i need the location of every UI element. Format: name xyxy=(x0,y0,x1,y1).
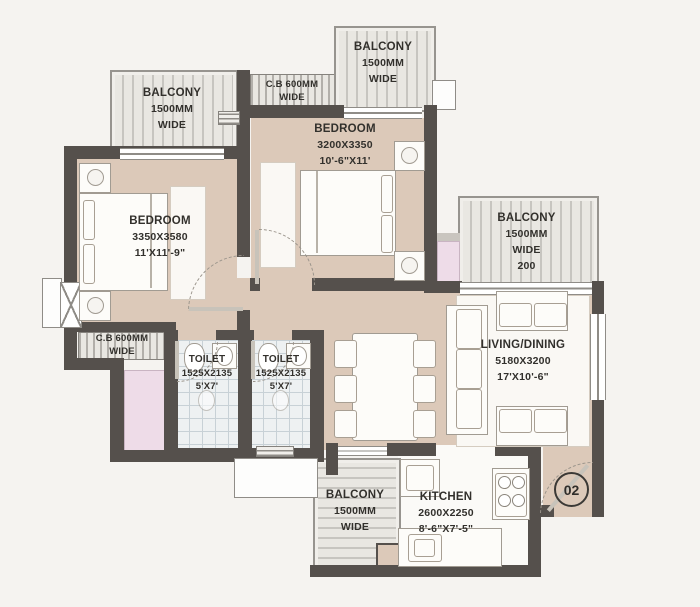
wall xyxy=(237,159,250,257)
wall xyxy=(237,310,250,334)
door-leaf xyxy=(189,307,243,311)
label-bedroom-left: BEDROOM 3350X3580 11'X11'-9" xyxy=(88,210,232,264)
pillow xyxy=(381,175,393,213)
sofa-cushion xyxy=(534,409,567,433)
label-kitchen: KITCHEN 2600X2250 8'-6"X7'-5" xyxy=(398,486,494,540)
label-cupboard-top: C.B 600MM WIDE xyxy=(252,78,332,106)
floor-plan: BALCONY 1500MM WIDE C.B 600MM WIDE BALCO… xyxy=(0,0,700,607)
lamp xyxy=(87,169,104,186)
burner xyxy=(512,476,525,489)
sink-bowl xyxy=(414,539,435,557)
chair xyxy=(413,375,436,403)
vent xyxy=(256,446,294,457)
label-balcony-top-left: BALCONY 1500MM WIDE xyxy=(112,80,232,138)
label-toilet-right: TOILET 1525X2135 5'X7' xyxy=(250,350,312,396)
ac-ledge xyxy=(42,278,62,328)
label-balcony-bottom: BALCONY 1500MM WIDE xyxy=(315,482,395,540)
burner xyxy=(512,494,525,507)
door-opening xyxy=(178,330,216,340)
pillow xyxy=(381,215,393,253)
label-cupboard-left: C.B 600MM WIDE xyxy=(80,333,164,359)
sofa-cushion xyxy=(499,409,532,433)
label-toilet-left: TOILET 1525X2135 5'X7' xyxy=(176,350,238,396)
label-balcony-right: BALCONY 1500MM WIDE 200 xyxy=(460,204,593,280)
utility-ledge xyxy=(234,458,318,498)
wall xyxy=(310,330,324,462)
wall xyxy=(326,443,338,475)
chair xyxy=(334,410,357,438)
wall xyxy=(424,105,437,293)
shaft-left xyxy=(124,370,166,452)
unit-number: 02 xyxy=(564,482,580,498)
lamp xyxy=(87,297,104,314)
chair xyxy=(413,340,436,368)
shaft-right xyxy=(437,241,460,285)
chair xyxy=(413,410,436,438)
chair xyxy=(334,375,357,403)
unit-number-badge: 02 xyxy=(554,472,589,507)
lamp xyxy=(401,257,418,274)
label-balcony-top: BALCONY 1500MM WIDE xyxy=(336,34,430,92)
sofa-cushion xyxy=(456,389,482,429)
window xyxy=(338,446,387,456)
wall xyxy=(387,443,436,456)
wall xyxy=(245,105,344,118)
chair xyxy=(334,340,357,368)
bed-fold-line xyxy=(316,171,318,253)
burner xyxy=(498,476,511,489)
wall xyxy=(424,281,462,293)
sofa-cushion xyxy=(534,303,567,327)
door-leaf xyxy=(255,230,259,284)
sofa-cushion xyxy=(499,303,532,327)
window xyxy=(120,148,224,160)
wall xyxy=(110,358,124,462)
door-opening xyxy=(254,330,292,340)
label-bedroom-top: BEDROOM 3200X3350 10'-6"X11' xyxy=(270,118,420,172)
burner xyxy=(498,494,511,507)
dining-table xyxy=(352,333,418,441)
label-living-dining: LIVING/DINING 5180X3200 17'X10'-6" xyxy=(445,334,601,388)
